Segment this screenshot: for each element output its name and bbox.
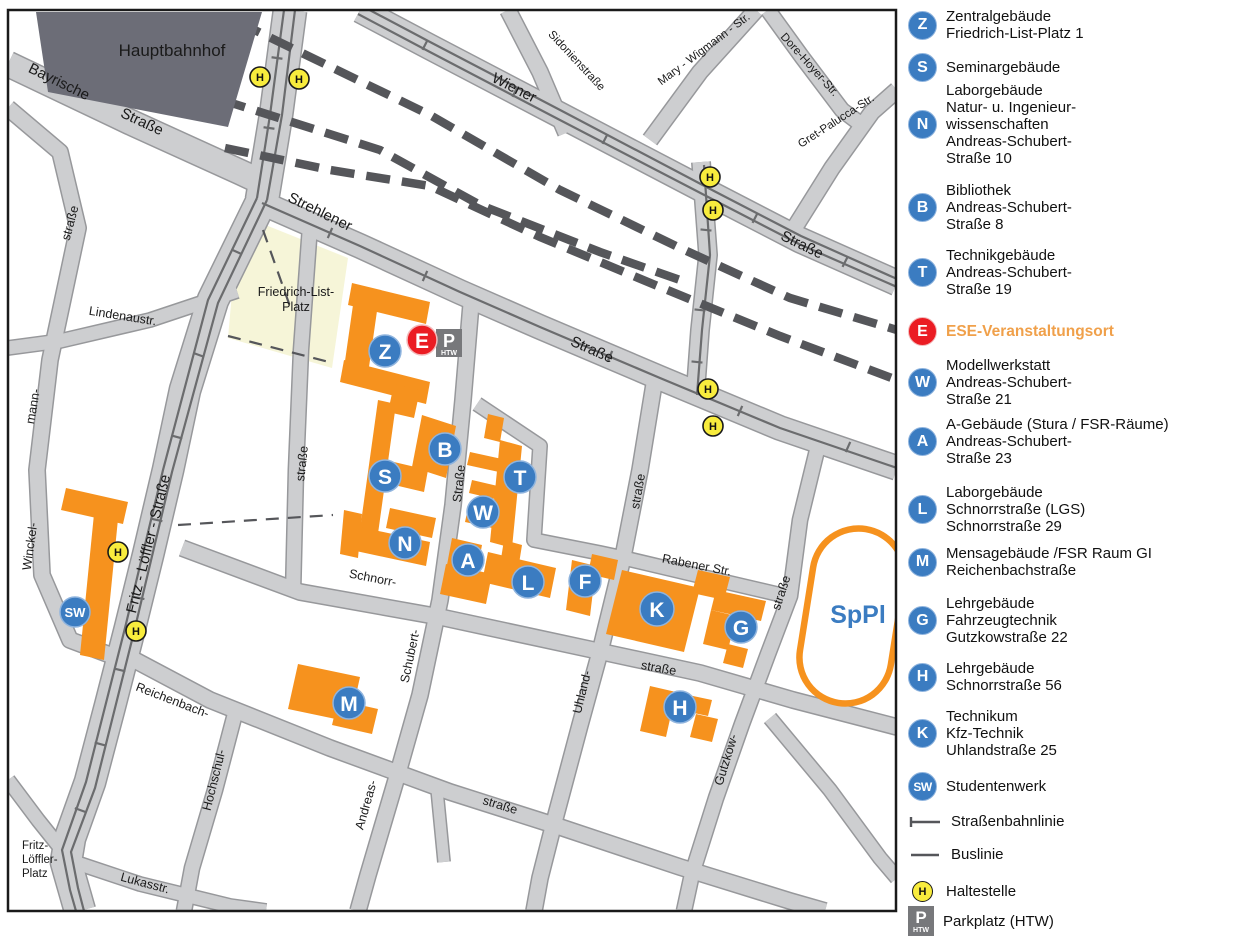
legend-item-z: Z ZentralgebäudeFriedrich-List-Platz 1 [908, 8, 1084, 42]
marker-b: B [437, 439, 452, 462]
hauptbahnhof-label: Hauptbahnhof [119, 41, 226, 60]
legend-item-h: H Lehrgebäude Schnorrstraße 56 [908, 660, 1062, 694]
marker-n: N [397, 533, 412, 556]
legend-item-parkplatz: P HTW Parkplatz (HTW) [908, 906, 1054, 936]
svg-text:H: H [256, 72, 264, 84]
legend-item-a: A A-Gebäude (Stura / FSR-Räume) Andreas-… [908, 416, 1169, 467]
svg-text:H: H [114, 547, 122, 559]
marker-f: F [579, 571, 592, 594]
marker-t: T [514, 467, 527, 490]
legend-item-t: T Technikgebäude Andreas-Schubert- Straß… [908, 247, 1072, 298]
t-building-icon: T [908, 258, 937, 287]
svg-text:H: H [295, 74, 303, 86]
fl-platz-label-3: Platz [22, 868, 48, 880]
w-building-icon: W [908, 368, 937, 397]
n-building-icon: N [908, 110, 937, 139]
svg-text:H: H [709, 421, 717, 433]
west-strasse-label: straße [293, 445, 311, 482]
l-building-icon: L [908, 495, 937, 524]
svg-text:HTW: HTW [441, 350, 457, 357]
marker-l: L [522, 572, 535, 595]
fl-platz-label-2: Löffler- [22, 854, 58, 866]
marker-s: S [378, 466, 392, 489]
legend-item-m: M Mensagebäude /FSR Raum GI Reichenbachs… [908, 545, 1152, 579]
parking-marker: P HTW [436, 329, 462, 357]
marker-g: G [733, 617, 749, 640]
h-building-icon: H [908, 663, 937, 692]
bus-line-icon [908, 848, 942, 862]
svg-text:P: P [443, 331, 455, 351]
legend-item-s: S Seminargebäude [908, 53, 1060, 82]
svg-text:H: H [704, 384, 712, 396]
sw-building-icon: SW [908, 772, 937, 801]
legend: Z ZentralgebäudeFriedrich-List-Platz 1 S… [905, 0, 1236, 950]
marker-sw: SW [65, 605, 87, 620]
dore-hoyer-label: Dore-Hoyer-Str. [778, 31, 841, 99]
fl-platz-label-1: Fritz- [22, 840, 48, 852]
andreas-schubert-strasse-label: Straße [450, 464, 468, 503]
ese-event-icon: E [908, 317, 937, 346]
marker-w: W [473, 502, 493, 525]
event-marker-e: E [407, 325, 437, 355]
z-building-icon: Z [908, 11, 937, 40]
tram-line-icon [908, 815, 942, 829]
schnorr-label: Schnorr- [348, 567, 398, 590]
campus-map-page: Hauptbahnhof Bayrische Straße Wiener Str… [0, 0, 1236, 950]
legend-item-l: L Laborgebäude Schnorrstraße (LGS) Schno… [908, 484, 1085, 535]
svg-text:H: H [706, 172, 714, 184]
marker-m: M [340, 693, 358, 716]
legend-item-g: G Lehrgebäude Fahrzeugtechnik Gutzkowstr… [908, 595, 1068, 646]
marker-k: K [649, 599, 664, 622]
legend-item-b: B Bibliothek Andreas-Schubert- Straße 8 [908, 182, 1072, 233]
legend-item-n: N Laborgebäude Natur- u. Ingenieur- wiss… [908, 82, 1076, 167]
svg-text:H: H [132, 626, 140, 638]
legend-item-tram: Straßenbahnlinie [908, 813, 1064, 830]
friedrich-list-label-1: Friedrich-List- [258, 285, 334, 299]
svg-text:H: H [709, 205, 717, 217]
g-building-icon: G [908, 606, 937, 635]
friedrich-list-label-2: Platz [282, 300, 310, 314]
legend-item-sw: SW Studentenwerk [908, 772, 1046, 801]
tram-stop-icon: H [912, 881, 933, 902]
marker-a: A [460, 550, 475, 573]
a-building-icon: A [908, 427, 937, 456]
parking-icon: P HTW [908, 906, 934, 936]
marker-z: Z [379, 341, 392, 364]
sppl-label: SpPl [830, 601, 886, 629]
legend-item-haltestelle: H Haltestelle [908, 881, 1016, 902]
m-building-icon: M [908, 548, 937, 577]
k-building-icon: K [908, 719, 937, 748]
svg-text:E: E [415, 330, 429, 353]
hauptbahnhof-building [36, 12, 262, 127]
legend-item-k: K Technikum Kfz-Technik Uhlandstraße 25 [908, 708, 1057, 759]
legend-item-ese: E ESE-Veranstaltungsort [908, 317, 1114, 346]
b-building-icon: B [908, 193, 937, 222]
legend-item-w: W Modellwerkstatt Andreas-Schubert- Stra… [908, 357, 1072, 408]
s-building-icon: S [908, 53, 937, 82]
legend-item-bus: Buslinie [908, 846, 1004, 863]
marker-h: H [672, 697, 687, 720]
